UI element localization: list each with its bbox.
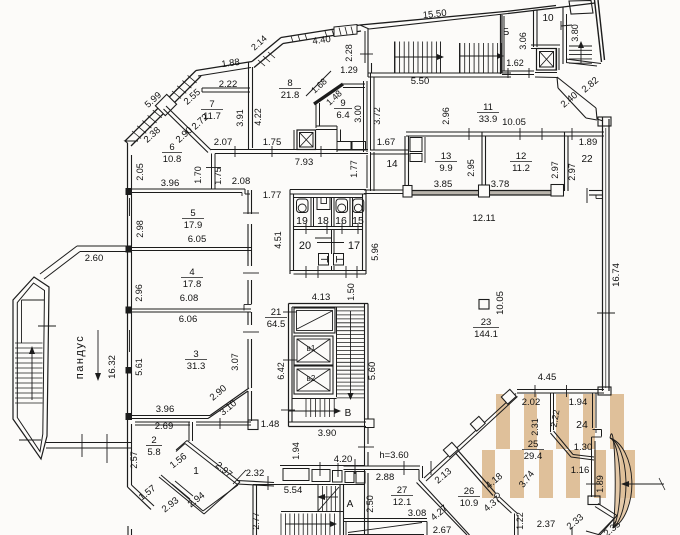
svg-text:2.98: 2.98 xyxy=(135,220,145,238)
svg-text:1.67: 1.67 xyxy=(377,137,396,148)
svg-text:1.29: 1.29 xyxy=(340,65,358,75)
svg-text:19: 19 xyxy=(296,215,308,227)
svg-text:h=3.60: h=3.60 xyxy=(379,450,408,461)
svg-text:3.80: 3.80 xyxy=(570,24,580,42)
svg-text:9: 9 xyxy=(340,98,345,109)
svg-text:6.08: 6.08 xyxy=(180,293,199,304)
svg-text:3.06: 3.06 xyxy=(518,32,528,50)
svg-text:4.13: 4.13 xyxy=(312,292,331,303)
svg-text:6.06: 6.06 xyxy=(179,314,198,325)
svg-text:6.05: 6.05 xyxy=(188,234,207,245)
svg-text:1.62: 1.62 xyxy=(506,58,524,68)
svg-text:12.11: 12.11 xyxy=(472,213,495,224)
svg-text:пандус: пандус xyxy=(74,335,86,379)
svg-text:1.75: 1.75 xyxy=(263,137,282,148)
svg-text:2.60: 2.60 xyxy=(85,253,104,264)
svg-text:64.5: 64.5 xyxy=(267,319,286,330)
svg-text:8: 8 xyxy=(287,78,292,89)
svg-text:1.94: 1.94 xyxy=(569,397,588,408)
svg-text:3.96: 3.96 xyxy=(156,404,175,415)
svg-text:3.96: 3.96 xyxy=(161,178,180,189)
svg-text:6: 6 xyxy=(169,142,174,153)
svg-text:2.97: 2.97 xyxy=(550,161,560,179)
svg-text:2.31: 2.31 xyxy=(530,418,540,436)
svg-text:21.8: 21.8 xyxy=(281,90,300,101)
svg-text:2.96: 2.96 xyxy=(441,107,451,125)
svg-text:11.2: 11.2 xyxy=(512,163,530,174)
svg-text:Б: Б xyxy=(503,27,510,38)
svg-text:1.89: 1.89 xyxy=(595,475,605,493)
svg-text:3.85: 3.85 xyxy=(434,179,453,190)
svg-text:13: 13 xyxy=(441,151,452,162)
svg-text:3.78: 3.78 xyxy=(491,179,510,190)
svg-text:20: 20 xyxy=(299,240,311,252)
svg-text:15: 15 xyxy=(352,215,364,227)
svg-text:1.22: 1.22 xyxy=(515,512,525,530)
svg-text:5.54: 5.54 xyxy=(284,485,303,496)
svg-text:5.60: 5.60 xyxy=(367,362,378,381)
svg-text:10.8: 10.8 xyxy=(163,154,182,165)
svg-text:2: 2 xyxy=(151,435,156,446)
svg-text:10.05: 10.05 xyxy=(495,291,506,315)
svg-text:в1: в1 xyxy=(307,344,316,353)
svg-text:2.57: 2.57 xyxy=(129,451,139,469)
svg-text:1.77: 1.77 xyxy=(349,160,359,178)
svg-text:2.95: 2.95 xyxy=(466,159,476,177)
svg-text:31.3: 31.3 xyxy=(187,361,206,372)
svg-text:3.00: 3.00 xyxy=(353,105,363,123)
svg-text:1.30: 1.30 xyxy=(574,442,593,453)
svg-text:23: 23 xyxy=(481,317,492,328)
svg-text:16.32: 16.32 xyxy=(107,355,118,379)
svg-text:2.77: 2.77 xyxy=(251,512,261,530)
svg-text:1.50: 1.50 xyxy=(346,283,356,301)
svg-text:27: 27 xyxy=(397,485,408,496)
svg-text:2.02: 2.02 xyxy=(522,397,541,408)
svg-text:2.69: 2.69 xyxy=(155,421,174,432)
svg-text:144.1: 144.1 xyxy=(474,329,498,340)
svg-text:в2: в2 xyxy=(307,374,316,383)
svg-text:4.20: 4.20 xyxy=(334,454,353,465)
svg-text:6.4: 6.4 xyxy=(336,110,349,121)
svg-text:7.93: 7.93 xyxy=(295,157,314,168)
svg-text:1.75: 1.75 xyxy=(213,167,223,185)
svg-text:10.9: 10.9 xyxy=(460,498,479,509)
svg-text:16: 16 xyxy=(335,215,347,227)
svg-text:1.89: 1.89 xyxy=(579,137,598,148)
svg-text:17.8: 17.8 xyxy=(183,279,202,290)
svg-text:5.61: 5.61 xyxy=(134,358,144,376)
svg-text:1.77: 1.77 xyxy=(263,190,282,201)
svg-text:1.70: 1.70 xyxy=(193,166,203,184)
svg-text:2.08: 2.08 xyxy=(232,176,251,187)
svg-text:4.45: 4.45 xyxy=(538,372,557,383)
svg-text:5.8: 5.8 xyxy=(147,447,160,458)
svg-text:2.50: 2.50 xyxy=(365,495,375,513)
svg-text:В: В xyxy=(345,408,352,419)
svg-text:2.88: 2.88 xyxy=(376,472,395,483)
svg-text:3.90: 3.90 xyxy=(318,428,337,439)
svg-text:2.97: 2.97 xyxy=(567,163,577,181)
svg-text:17: 17 xyxy=(348,240,360,252)
svg-text:17.9: 17.9 xyxy=(184,220,203,231)
svg-text:2.22: 2.22 xyxy=(219,79,238,90)
svg-text:25: 25 xyxy=(528,439,539,450)
svg-text:3.72: 3.72 xyxy=(372,107,382,125)
svg-text:2.28: 2.28 xyxy=(344,44,354,62)
svg-text:5.50: 5.50 xyxy=(411,76,430,87)
svg-text:3.08: 3.08 xyxy=(408,508,427,519)
svg-text:24: 24 xyxy=(576,419,588,431)
svg-text:1.94: 1.94 xyxy=(291,442,301,460)
svg-text:1.48: 1.48 xyxy=(261,419,280,430)
svg-text:16.74: 16.74 xyxy=(611,263,622,287)
svg-text:1: 1 xyxy=(193,466,199,477)
svg-text:10.05: 10.05 xyxy=(502,117,526,128)
svg-text:33.9: 33.9 xyxy=(479,114,498,125)
svg-text:3: 3 xyxy=(193,349,198,360)
svg-text:18: 18 xyxy=(317,215,329,227)
svg-text:2.32: 2.32 xyxy=(246,468,265,479)
svg-text:А: А xyxy=(347,499,354,510)
svg-text:3.07: 3.07 xyxy=(230,353,240,371)
svg-text:2.67: 2.67 xyxy=(433,525,452,535)
svg-text:4: 4 xyxy=(189,267,194,278)
svg-text:2.07: 2.07 xyxy=(214,137,233,148)
svg-text:2.96: 2.96 xyxy=(134,284,144,302)
svg-text:2.37: 2.37 xyxy=(537,519,556,530)
svg-text:4.22: 4.22 xyxy=(253,108,263,126)
svg-text:2.05: 2.05 xyxy=(135,163,145,181)
svg-text:9.9: 9.9 xyxy=(439,163,452,174)
svg-text:3.91: 3.91 xyxy=(235,109,245,127)
svg-text:29.4: 29.4 xyxy=(524,451,543,462)
svg-text:1.16: 1.16 xyxy=(571,465,590,476)
svg-text:5: 5 xyxy=(190,208,195,219)
svg-text:6.42: 6.42 xyxy=(276,362,286,380)
svg-text:4.51: 4.51 xyxy=(273,231,283,249)
svg-text:10: 10 xyxy=(542,13,554,24)
svg-text:21: 21 xyxy=(271,307,282,318)
svg-text:11: 11 xyxy=(483,102,493,113)
svg-text:26: 26 xyxy=(464,486,475,497)
svg-text:5.96: 5.96 xyxy=(370,243,380,261)
svg-text:7: 7 xyxy=(209,99,214,110)
svg-text:12.1: 12.1 xyxy=(393,497,412,508)
svg-text:22: 22 xyxy=(581,154,593,165)
svg-text:14: 14 xyxy=(386,159,398,170)
svg-text:12: 12 xyxy=(516,151,527,162)
